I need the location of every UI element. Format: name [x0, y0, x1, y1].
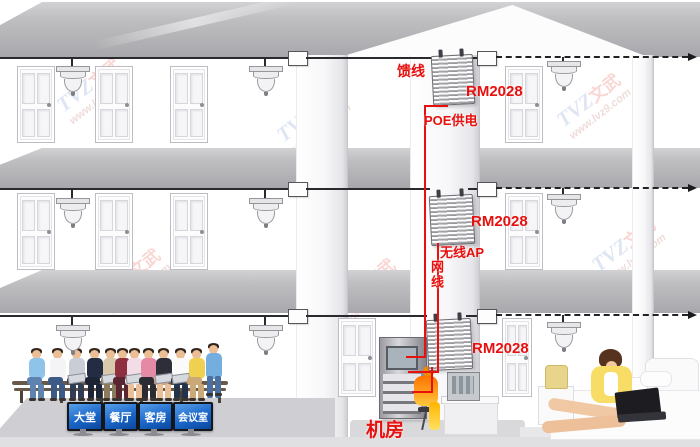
antenna-bell: [555, 335, 573, 348]
sign-base: [144, 433, 164, 436]
door-panel: [343, 363, 356, 391]
person-leg: [70, 384, 76, 399]
antenna-disc: [551, 328, 577, 335]
door-panel: [507, 363, 516, 391]
person-shoe: [198, 398, 205, 401]
person-leg: [30, 384, 36, 399]
server-rack-screen: [386, 346, 418, 370]
lobby-person: [203, 344, 225, 398]
ceiling-dome-antenna: [547, 194, 581, 224]
antenna-tip: [71, 351, 75, 355]
door-panel: [358, 363, 371, 391]
feeder-cable: [0, 315, 288, 317]
room-door: [95, 193, 133, 270]
antenna-disc: [60, 72, 86, 79]
rm2028-device: [426, 318, 474, 371]
ceiling-dome-antenna: [249, 325, 283, 355]
person-torso: [50, 358, 66, 379]
room-door: [505, 66, 543, 143]
ceiling-dome-antenna: [56, 66, 90, 96]
door-panel: [100, 200, 113, 231]
door-panel: [22, 109, 35, 137]
person-shoe: [87, 398, 94, 401]
door-panel: [100, 73, 113, 104]
antenna-tip: [562, 220, 566, 224]
lobby-person: [26, 349, 48, 403]
ceiling-dome-antenna: [56, 198, 90, 228]
ceiling-dome-antenna: [249, 198, 283, 228]
network-cable-red: [408, 371, 439, 373]
person-leg: [128, 384, 134, 399]
bench-leg: [20, 391, 23, 403]
room-sign: 餐厅: [103, 402, 138, 431]
label-machine-room: 机房: [366, 415, 404, 442]
floor2-slab: [0, 148, 700, 188]
antenna-bell: [257, 338, 275, 351]
person-shoe: [29, 398, 36, 401]
room-door: [170, 193, 208, 270]
door-panel: [175, 236, 188, 264]
antenna-drop-cable: [71, 57, 73, 66]
coax-splitter: [477, 309, 497, 324]
door-panel: [37, 200, 50, 231]
antenna-tip: [264, 224, 268, 228]
antenna-disc: [551, 67, 577, 74]
person-shoe: [50, 398, 57, 401]
label-feeder-line: 馈线: [397, 61, 425, 81]
person-shoe: [69, 398, 76, 401]
door-panel: [510, 236, 523, 264]
device-antenna-stub: [457, 312, 461, 320]
door-panel: [525, 73, 538, 104]
door-panel: [190, 73, 203, 104]
device-antenna-stub: [459, 188, 463, 196]
person-leg: [190, 384, 196, 399]
ceiling-dome-antenna: [547, 322, 581, 352]
person-shoe: [189, 398, 196, 401]
antenna-tip: [264, 92, 268, 96]
person-leg: [157, 384, 163, 399]
person-shoe: [59, 398, 66, 401]
building-network-diagram: TVZ文武www.lvz9.comTVZ文武www.lvz9.comTVZ文武w…: [0, 0, 700, 447]
door-handle: [200, 230, 204, 234]
poe-cable-red: [424, 105, 426, 358]
antenna-disc: [60, 331, 86, 338]
person-shoe: [141, 398, 148, 401]
door-panel: [190, 236, 203, 264]
door-panel: [518, 363, 527, 391]
door-panel: [22, 236, 35, 264]
label-wireless-ap: 无线AP: [440, 242, 484, 261]
door-panel: [37, 73, 50, 104]
antenna-bell: [64, 211, 82, 224]
door-panel: [115, 73, 128, 104]
antenna-tip: [264, 351, 268, 355]
door-panel: [37, 236, 50, 264]
antenna-drop-cable: [264, 57, 266, 66]
door-panel: [358, 325, 371, 356]
arrowhead-icon: [688, 311, 697, 319]
person-leg: [104, 384, 110, 399]
room-door: [170, 66, 208, 143]
coax-splitter: [288, 51, 308, 66]
bed-pillow: [640, 371, 672, 387]
door-handle: [47, 230, 51, 234]
door-panel: [37, 109, 50, 137]
coax-splitter: [288, 309, 308, 324]
person-leg: [142, 384, 148, 399]
room-door: [17, 193, 55, 270]
door-panel: [525, 109, 538, 137]
antenna-tip: [562, 87, 566, 91]
antenna-tip: [71, 224, 75, 228]
feeder-cable: [466, 315, 477, 317]
door-panel: [115, 200, 128, 231]
person-leg: [88, 384, 94, 399]
arrowhead-icon: [688, 53, 697, 61]
device-antenna-stub: [459, 48, 463, 56]
label-network-cable: 网线: [427, 260, 446, 290]
feeder-cable: [306, 57, 432, 59]
ceiling-dome-antenna: [547, 61, 581, 91]
door-handle: [200, 103, 204, 107]
feeder-cable: [468, 188, 477, 190]
dashed-signal-line: [496, 314, 688, 316]
door-panel: [22, 73, 35, 104]
antenna-disc: [253, 331, 279, 338]
door-panel: [190, 109, 203, 137]
door-panel: [525, 236, 538, 264]
floor1-slab: [0, 270, 700, 313]
room-door: [17, 66, 55, 143]
door-handle: [125, 103, 129, 107]
ceiling-dome-antenna: [249, 66, 283, 96]
antenna-drop-cable: [264, 315, 266, 325]
feeder-cable: [306, 315, 427, 317]
room-door: [505, 193, 543, 270]
room-sign: 客房: [138, 402, 173, 431]
person-torso: [29, 358, 45, 379]
antenna-bell: [555, 74, 573, 87]
watermark-brand: TVZ: [552, 88, 598, 131]
antenna-disc: [253, 204, 279, 211]
antenna-disc: [253, 72, 279, 79]
door-panel: [22, 200, 35, 231]
room-door: [338, 318, 376, 397]
watermark-url: www.lvz9.com: [567, 86, 633, 142]
room-door: [502, 318, 532, 397]
person-leg: [59, 384, 65, 399]
person-shoe: [127, 398, 134, 401]
device-antenna-stub: [438, 50, 442, 58]
door-handle: [125, 230, 129, 234]
door-panel: [343, 325, 356, 356]
antenna-tip: [562, 348, 566, 352]
person-shoe: [173, 398, 180, 401]
label-rm2028: RM2028: [472, 340, 529, 357]
dashed-signal-line: [496, 187, 688, 189]
person-leg: [51, 384, 57, 399]
label-rm2028: RM2028: [471, 213, 528, 230]
door-handle: [368, 356, 372, 360]
dashed-signal-line: [496, 56, 688, 58]
sign-base: [181, 433, 201, 436]
door-handle: [535, 230, 539, 234]
coax-splitter: [477, 182, 497, 197]
sign-base: [109, 433, 129, 436]
coax-splitter: [477, 51, 497, 66]
antenna-disc: [551, 200, 577, 207]
antenna-drop-cable: [71, 188, 73, 198]
label-poe-power: POE供电: [424, 110, 477, 129]
door-handle: [47, 103, 51, 107]
operator-silhouette-leg: [429, 402, 440, 430]
desk-front: [444, 403, 498, 435]
network-cable-red: [431, 367, 433, 393]
coax-splitter: [288, 182, 308, 197]
arrowhead-icon: [688, 184, 697, 192]
door-panel: [100, 109, 113, 137]
antenna-bell: [555, 207, 573, 220]
antenna-bell: [257, 79, 275, 92]
device-antenna-stub: [436, 190, 440, 198]
poe-cable-red: [424, 105, 448, 107]
feeder-cable: [0, 188, 288, 190]
person-shoe: [115, 398, 122, 401]
room-door: [95, 66, 133, 143]
ceiling-dome-antenna: [56, 325, 90, 355]
person-leg: [38, 384, 44, 399]
door-panel: [175, 73, 188, 104]
person-shoe: [215, 393, 222, 396]
sign-base: [73, 433, 93, 436]
room-sign: 会议室: [173, 402, 213, 431]
person-shoe: [38, 398, 45, 401]
antenna-bell: [257, 211, 275, 224]
antenna-tip: [71, 92, 75, 96]
poe-cable-red: [406, 356, 426, 358]
door-panel: [100, 236, 113, 264]
door-panel: [175, 109, 188, 137]
door-panel: [115, 109, 128, 137]
watermark-brand-cn: 文武: [586, 71, 624, 107]
person-shoe: [206, 393, 213, 396]
door-handle: [535, 103, 539, 107]
desktop-monitor-screen: [452, 376, 474, 394]
person-shoe: [156, 398, 163, 401]
network-cable-red: [412, 391, 433, 393]
label-rm2028: RM2028: [466, 83, 523, 100]
door-panel: [190, 200, 203, 231]
door-panel: [175, 200, 188, 231]
antenna-bell: [64, 338, 82, 351]
antenna-drop-cable: [264, 188, 266, 198]
handbag: [545, 365, 568, 389]
person-shoe: [103, 398, 110, 401]
antenna-drop-cable: [71, 315, 73, 325]
person-leg: [116, 384, 122, 399]
door-panel: [510, 109, 523, 137]
room-sign: 大堂: [67, 402, 103, 431]
feeder-cable: [0, 57, 288, 59]
door-panel: [115, 236, 128, 264]
antenna-disc: [60, 204, 86, 211]
rm2028-device: [429, 194, 476, 246]
antenna-bell: [64, 79, 82, 92]
feeder-cable: [306, 188, 430, 190]
person-leg: [174, 384, 180, 399]
